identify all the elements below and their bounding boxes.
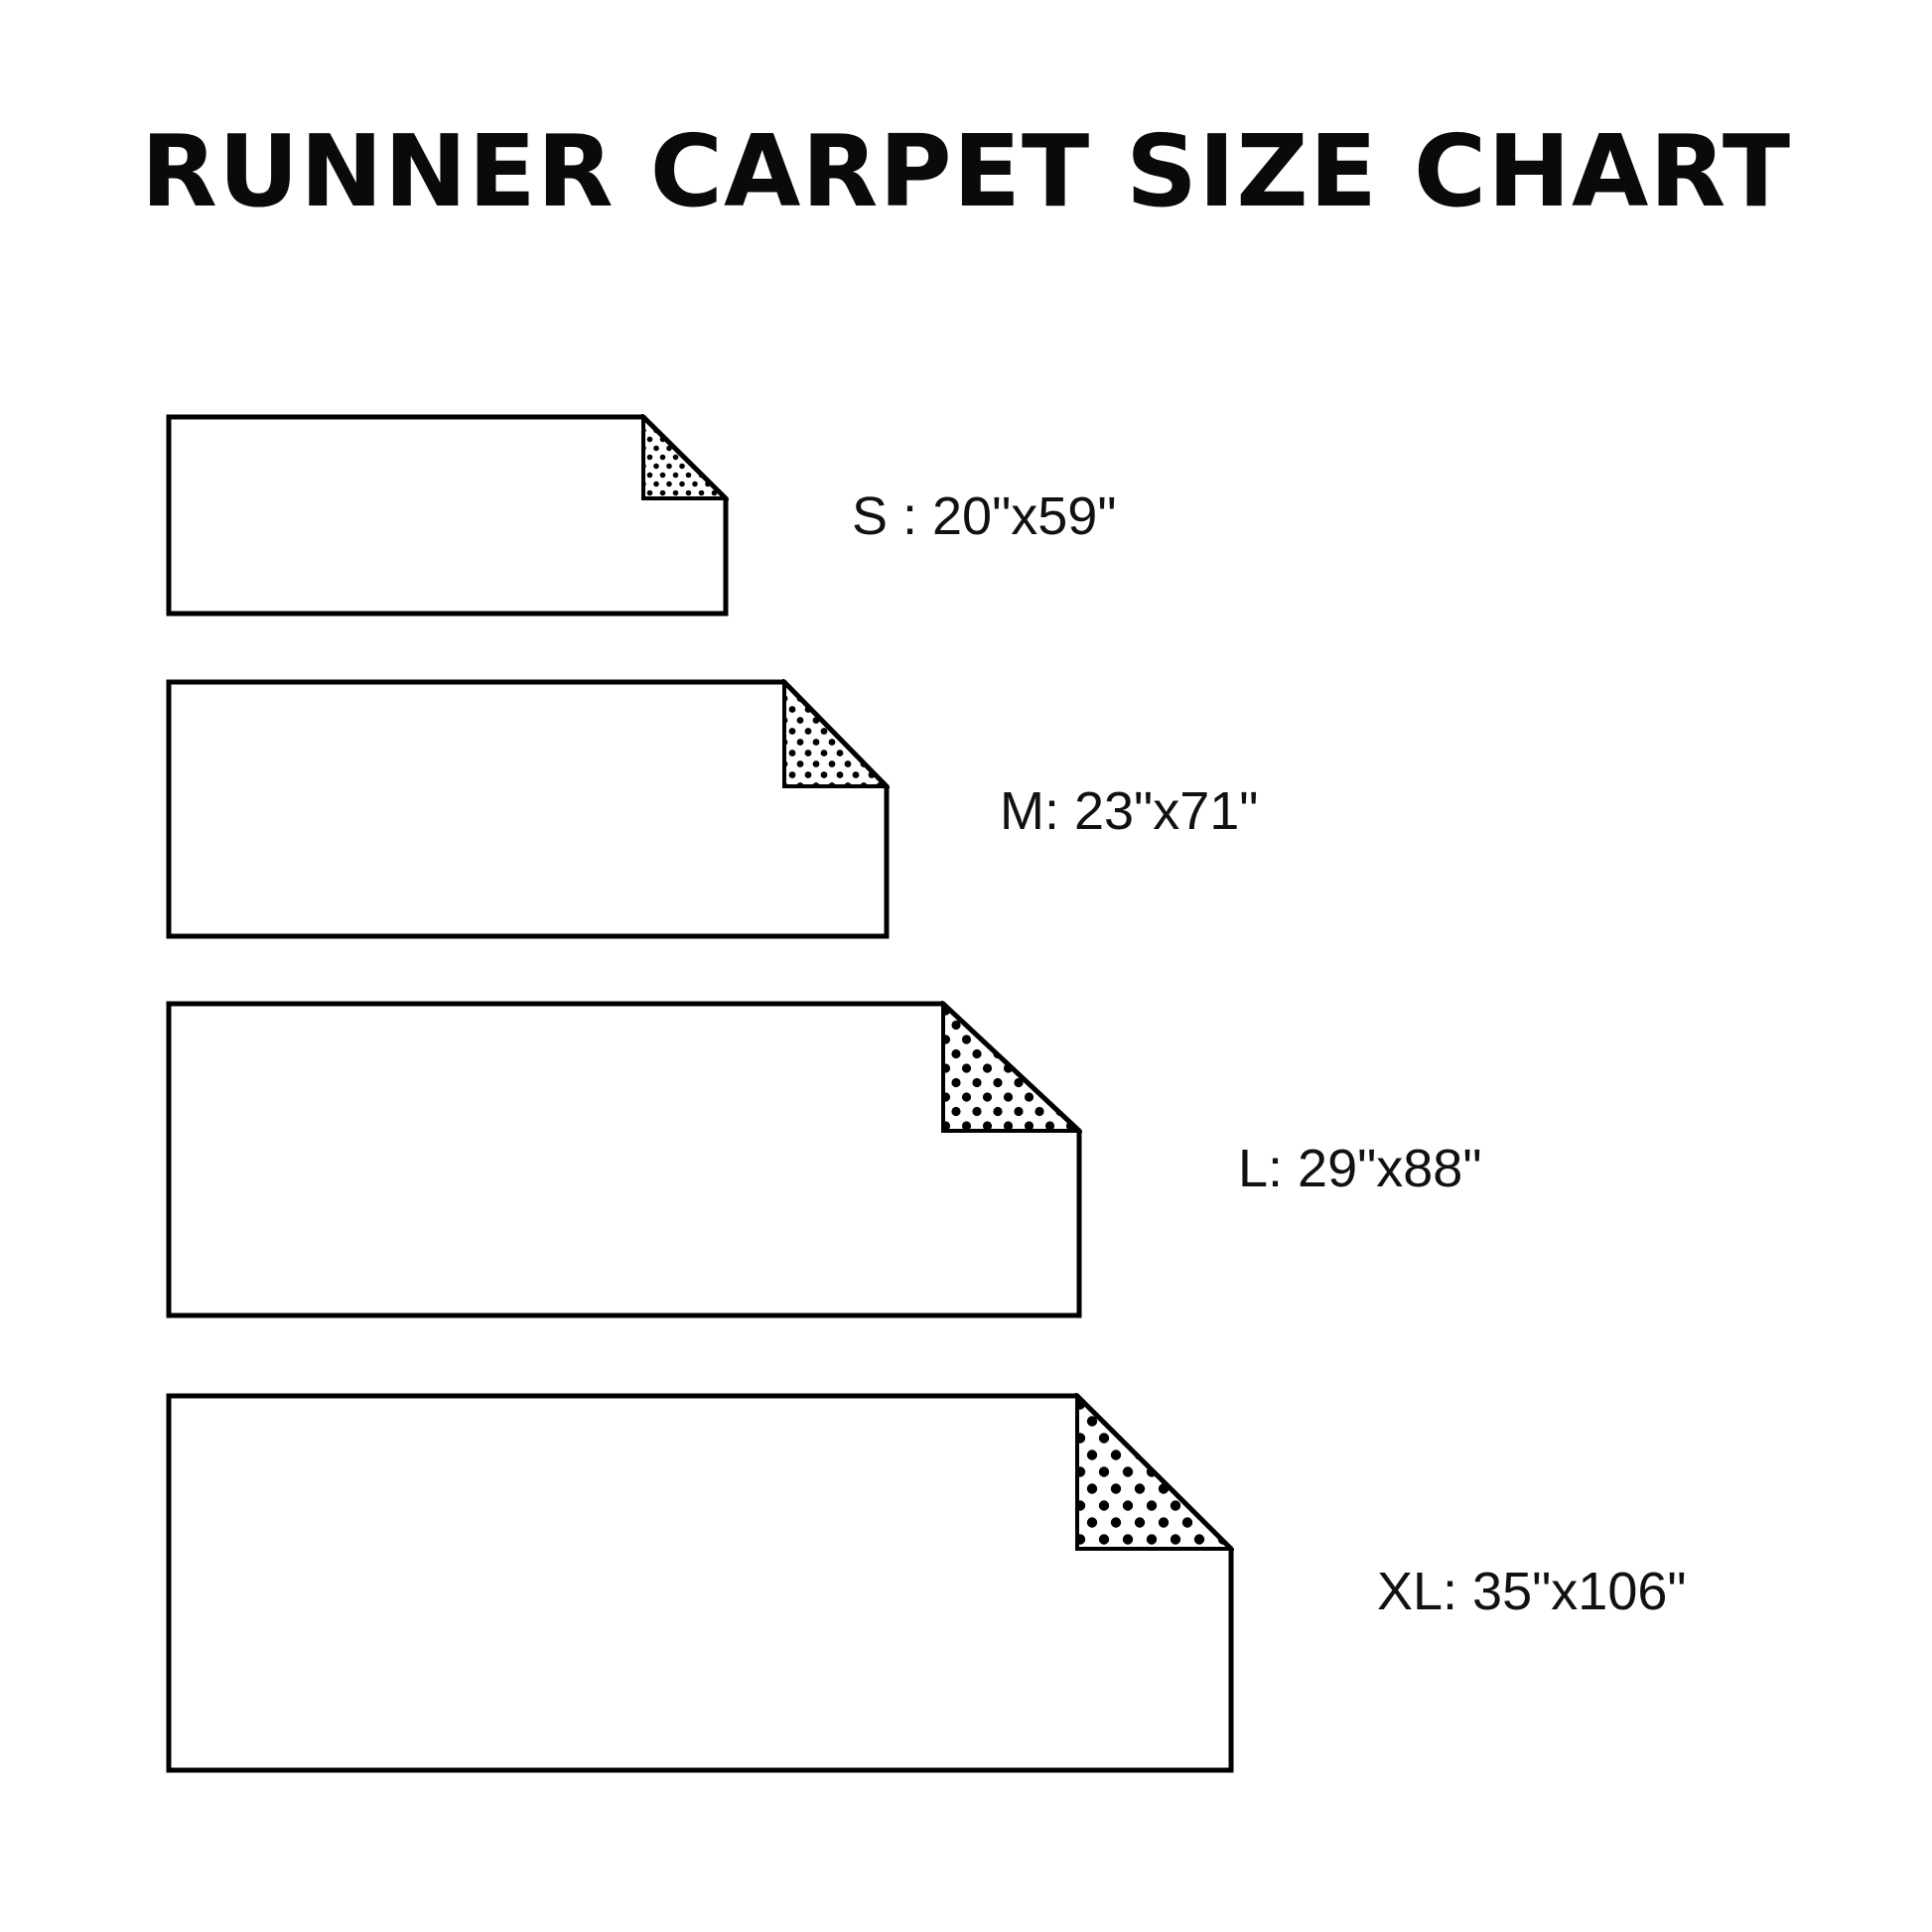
size-label-xl: XL: 35"x106" [1377, 1561, 1687, 1622]
folded-corner-l [943, 1004, 1079, 1131]
carpet-outline-xl [169, 1396, 1231, 1770]
folded-corner-xl [1077, 1396, 1231, 1549]
size-label-l: L: 29"x88" [1238, 1138, 1482, 1199]
page-title: RUNNER CARPET SIZE CHART [0, 117, 1932, 226]
carpet-shape-l [166, 1001, 1082, 1318]
carpet-shape-s [166, 414, 729, 617]
runner-carpet-size-chart: RUNNER CARPET SIZE CHART [0, 0, 1932, 1932]
folded-corner-m [784, 682, 887, 786]
carpet-outline-m [169, 682, 887, 936]
carpet-shape-xl [166, 1393, 1234, 1773]
size-label-m: M: 23"x71" [1000, 780, 1258, 842]
folded-corner-s [643, 417, 726, 498]
carpet-shape-m [166, 679, 890, 939]
size-label-s: S : 20"x59" [852, 485, 1117, 547]
